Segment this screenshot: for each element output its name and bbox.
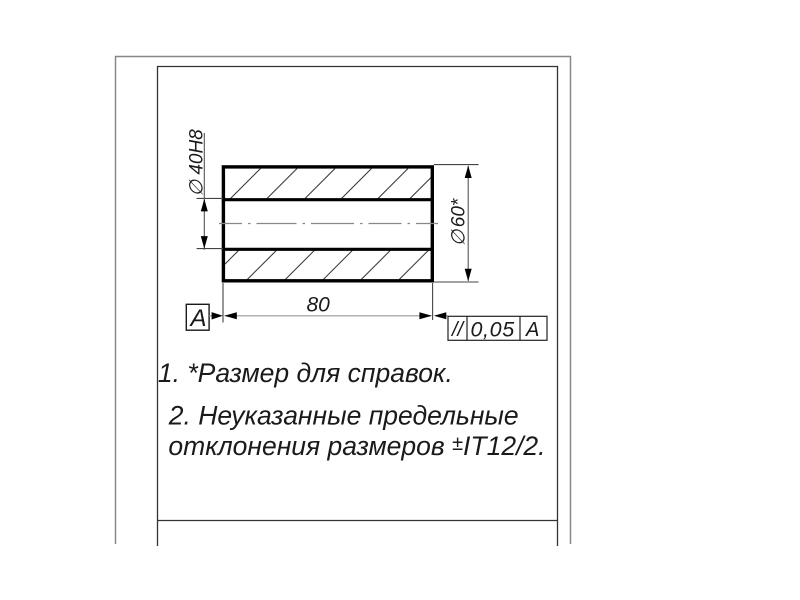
svg-text:∅60*: ∅60* <box>449 198 470 246</box>
svg-text:отклонения размеров ±IT12/2.: отклонения размеров ±IT12/2. <box>168 431 545 461</box>
svg-text:80: 80 <box>307 294 331 317</box>
svg-text://: // <box>450 319 466 341</box>
svg-text:0,05: 0,05 <box>471 318 516 342</box>
svg-text:2. Неуказанные предельные: 2. Неуказанные предельные <box>168 401 519 431</box>
svg-text:A: A <box>189 305 207 332</box>
svg-text:A: A <box>525 319 539 341</box>
svg-text:1. *Размер для справок.: 1. *Размер для справок. <box>158 358 453 388</box>
svg-text:∅ 40H8: ∅ 40H8 <box>187 129 208 197</box>
